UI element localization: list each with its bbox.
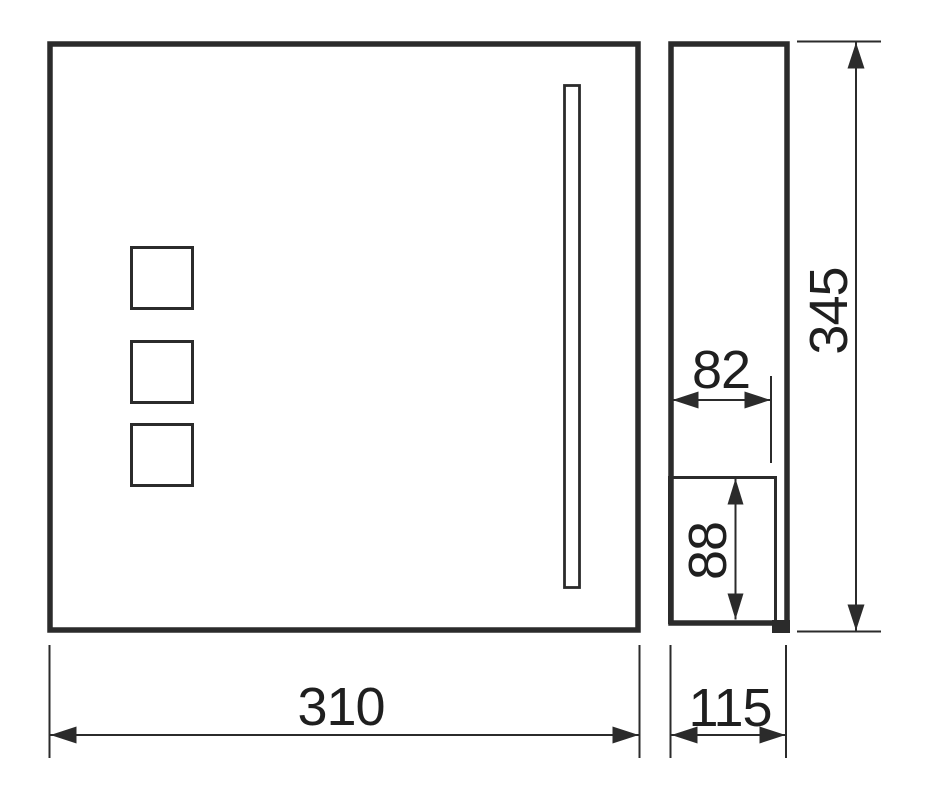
dim-345-arrow-up-icon bbox=[848, 43, 865, 69]
front-square-top bbox=[132, 248, 193, 309]
dim-88-label: 88 bbox=[678, 522, 738, 580]
dim-310-arrow-left-icon bbox=[51, 727, 77, 744]
drawing-canvas: 310 115 345 82 88 bbox=[0, 0, 926, 800]
dim-345-arrow-down-icon bbox=[848, 605, 865, 631]
front-square-bottom bbox=[132, 425, 193, 486]
side-view-foot bbox=[772, 620, 790, 633]
dim-82-label: 82 bbox=[692, 340, 750, 400]
technical-drawing: 310 115 345 82 88 bbox=[0, 0, 926, 800]
letter-slot bbox=[565, 86, 580, 588]
dim-345-label: 345 bbox=[799, 267, 859, 354]
dim-310-label: 310 bbox=[297, 677, 384, 737]
dim-88-arrow-up-icon bbox=[728, 479, 744, 505]
dim-88-arrow-down-icon bbox=[728, 594, 744, 620]
front-square-middle bbox=[132, 342, 193, 403]
front-view-outline bbox=[50, 44, 638, 630]
dim-115-label: 115 bbox=[688, 678, 771, 738]
dim-310-arrow-right-icon bbox=[613, 727, 639, 744]
